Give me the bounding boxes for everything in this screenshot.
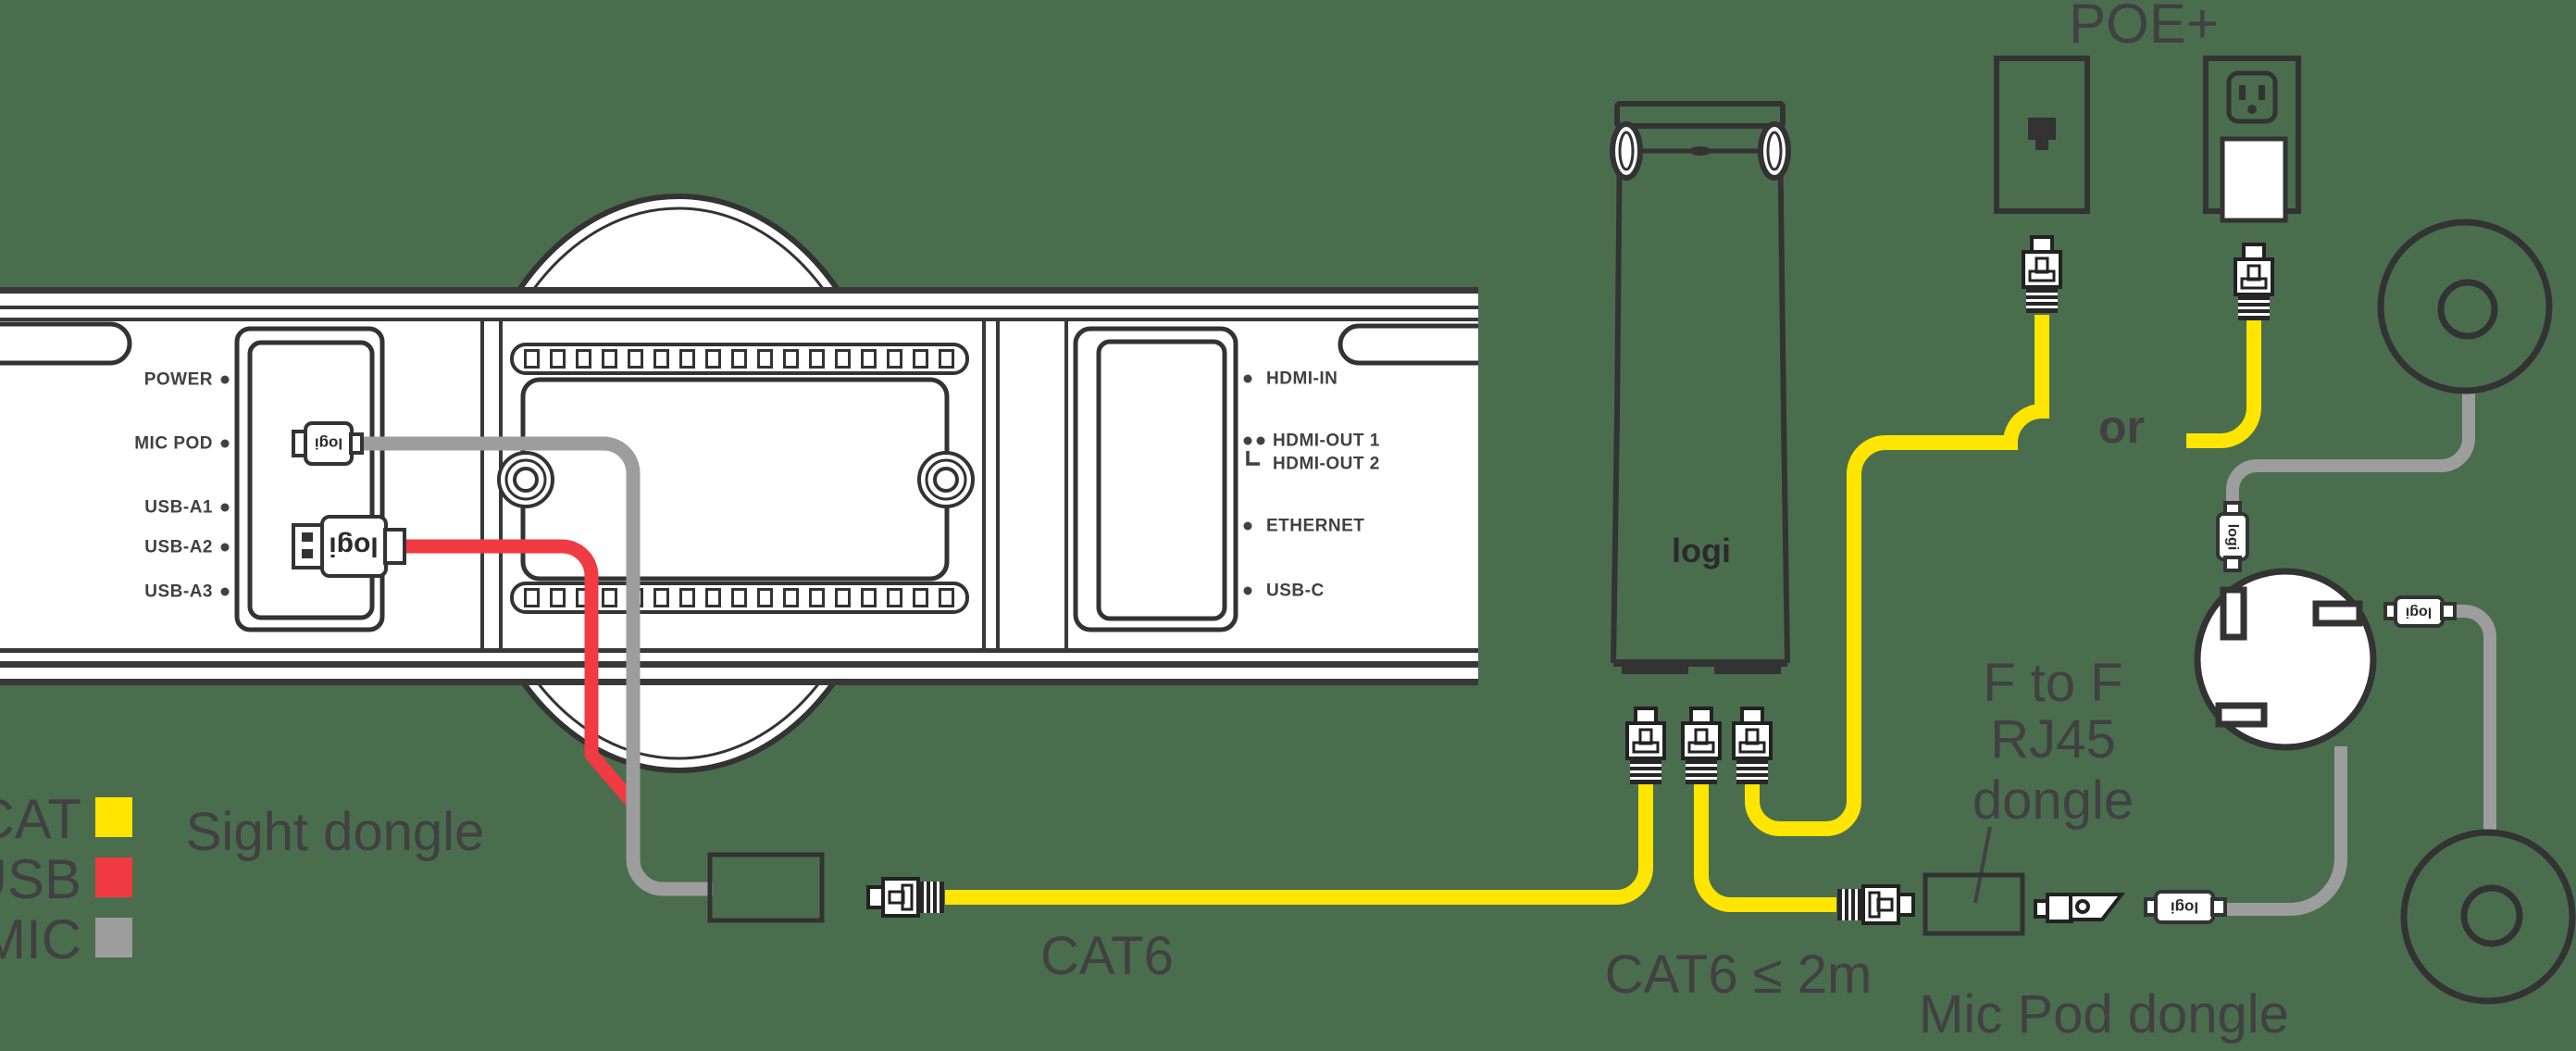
- port-label-hdmi-out1: HDMI-OUT 1: [1273, 432, 1380, 451]
- cat6-label: CAT6: [1040, 926, 1174, 986]
- port-label-usba2: USB-A2: [144, 538, 213, 557]
- legend-cat-swatch: [95, 797, 132, 837]
- f-to-f-line3: dongle: [1972, 770, 2134, 831]
- legend-usb-swatch: [95, 857, 132, 897]
- legend-mic-label: MIC: [0, 908, 81, 970]
- usb-bar-dongle: logi: [293, 517, 404, 576]
- poe-adapter-brick: [2222, 139, 2285, 220]
- f-to-f-line1: F to F: [1983, 653, 2122, 713]
- mic-pod-bar-dongle: logi: [293, 423, 362, 464]
- legend-usb-label: USB: [0, 848, 81, 910]
- f-to-f-line2: RJ45: [1990, 709, 2115, 769]
- port-label-usbc: USB-C: [1266, 582, 1325, 601]
- logi-dongle-bottom: logi: [2146, 892, 2225, 922]
- right-port-recess: [1076, 329, 1236, 630]
- mic-pod-dongle-label: Mic Pod dongle: [1919, 984, 2289, 1045]
- logi-logo: logi: [2171, 899, 2198, 917]
- legend-mic-swatch: [95, 918, 132, 957]
- poe-label: POE+: [2069, 0, 2219, 55]
- diagram-canvas: POWER MIC POD USB-A1 USB-A2 USB-A3 HDMI-…: [0, 0, 2576, 1051]
- port-label-ethernet: ETHERNET: [1266, 517, 1364, 536]
- screw-left: [499, 453, 553, 507]
- left-speaker-slot: [0, 324, 130, 363]
- left-port-recess: [237, 329, 382, 630]
- logi-logo: logi: [329, 532, 378, 562]
- sight-lens: [1689, 146, 1711, 156]
- port-label-power: POWER: [144, 370, 213, 390]
- logi-dongle-vertical: logi: [2218, 503, 2247, 570]
- logi-dongle-mid: logi: [2385, 597, 2455, 626]
- legend-cat-label: CAT: [0, 788, 81, 850]
- port-label-usba3: USB-A3: [144, 582, 213, 602]
- connection-diagram: POWER MIC POD USB-A1 USB-A2 USB-A3 HDMI-…: [0, 0, 2576, 1051]
- logi-logo: logi: [315, 435, 342, 453]
- port-label-micpod: MIC POD: [134, 434, 213, 454]
- logi-logo: logi: [1672, 532, 1731, 569]
- logi-logo: logi: [2406, 605, 2432, 620]
- video-bar: POWER MIC POD USB-A1 USB-A2 USB-A3 HDMI-…: [0, 287, 1525, 685]
- or-label: or: [2098, 401, 2145, 453]
- port-label-hdmi-out2: HDMI-OUT 2: [1273, 455, 1380, 474]
- screw-right: [919, 453, 973, 507]
- port-label-hdmi-in: HDMI-IN: [1266, 369, 1338, 389]
- legend: CAT USB MIC: [0, 788, 132, 970]
- f-to-f-label: F to F RJ45 dongle: [1972, 653, 2134, 831]
- port-label-usba1: USB-A1: [144, 498, 213, 518]
- mic-pod-base: [2197, 571, 2373, 747]
- cat6-max-label: CAT6 ≤ 2m: [1605, 945, 1873, 1005]
- sight-dongle-label: Sight dongle: [186, 802, 484, 862]
- logi-logo: logi: [2225, 524, 2241, 550]
